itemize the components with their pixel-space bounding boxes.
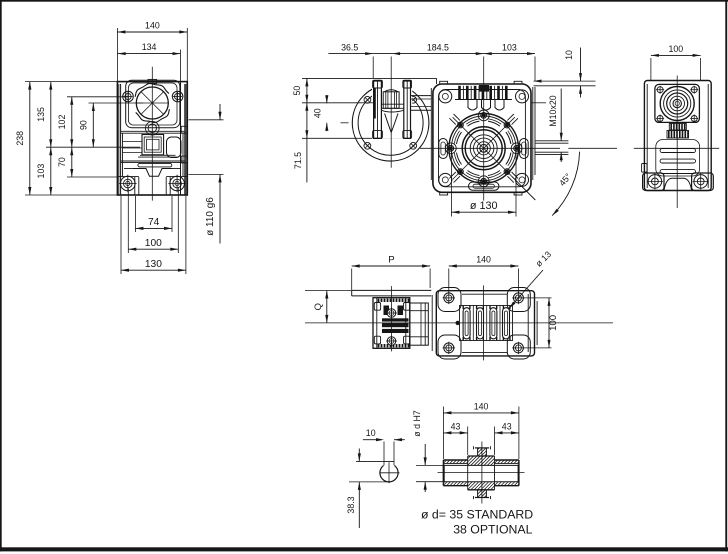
svg-text:100: 100 — [668, 44, 683, 54]
svg-text:71.5: 71.5 — [293, 152, 303, 169]
svg-text:ø 130: ø 130 — [470, 200, 498, 212]
svg-text:P: P — [388, 254, 394, 265]
svg-text:103: 103 — [36, 164, 46, 179]
svg-text:70: 70 — [57, 157, 67, 167]
svg-text:Q: Q — [313, 303, 324, 310]
svg-text:ø d H7: ø d H7 — [412, 410, 422, 437]
svg-text:ø 110 g6: ø 110 g6 — [205, 197, 216, 236]
svg-text:134: 134 — [142, 42, 157, 52]
svg-text:103: 103 — [502, 42, 517, 52]
svg-text:10: 10 — [564, 50, 574, 60]
svg-text:100: 100 — [145, 238, 162, 249]
svg-text:50: 50 — [292, 86, 302, 96]
svg-text:74: 74 — [148, 217, 160, 228]
svg-text:36.5: 36.5 — [341, 42, 358, 52]
svg-text:40: 40 — [312, 108, 322, 118]
svg-text:38 OPTIONAL: 38 OPTIONAL — [453, 522, 532, 536]
svg-text:140: 140 — [476, 254, 491, 264]
svg-text:140: 140 — [145, 21, 160, 31]
svg-text:130: 130 — [145, 259, 162, 270]
svg-text:90: 90 — [79, 120, 89, 130]
svg-text:43: 43 — [451, 422, 461, 432]
svg-text:43: 43 — [502, 422, 512, 432]
svg-text:102: 102 — [57, 115, 67, 130]
svg-text:184.5: 184.5 — [427, 42, 449, 52]
svg-text:135: 135 — [36, 107, 46, 122]
svg-text:ø d= 35 STANDARD: ø d= 35 STANDARD — [421, 508, 533, 522]
svg-text:M10x20: M10x20 — [548, 95, 558, 126]
svg-text:140: 140 — [474, 401, 489, 411]
svg-text:238: 238 — [15, 131, 25, 146]
svg-text:38.3: 38.3 — [346, 496, 356, 513]
svg-text:10: 10 — [366, 428, 376, 438]
